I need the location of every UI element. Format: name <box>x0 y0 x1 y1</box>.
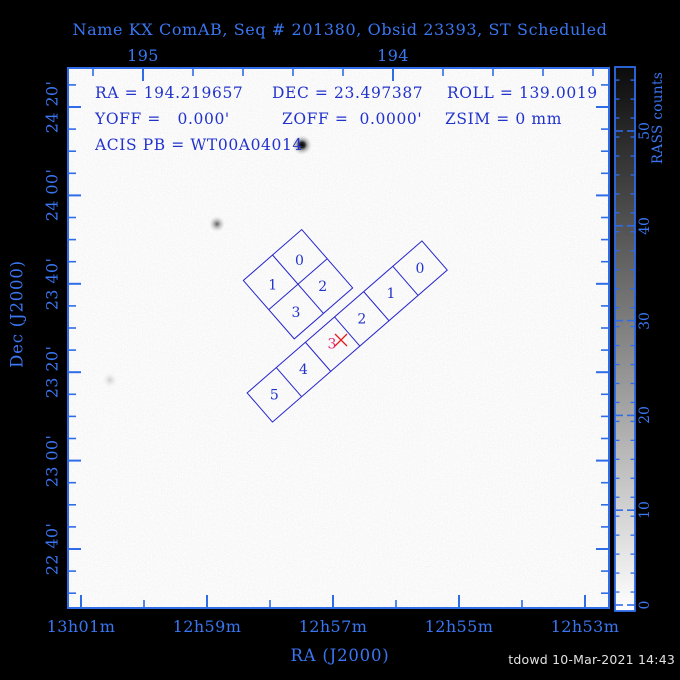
bottom-axis-tick-label: 12h55m <box>414 617 504 636</box>
dec-tick-label: 23 20' <box>43 346 62 399</box>
bottom-axis-tick-label: 12h53m <box>540 617 630 636</box>
page-title: Name KX ComAB, Seq # 201380, Obsid 23393… <box>0 20 680 39</box>
info-dec: DEC = 23.497387 <box>272 84 423 102</box>
dec-tick-label: 22 40' <box>43 523 62 576</box>
colorbar-tick-label: 0 <box>637 601 653 610</box>
acis-i-chip-label: 0 <box>295 253 304 269</box>
acis-s-aimpoint-chip-label: 3 <box>328 337 337 353</box>
info-yoff: YOFF = 0.000' <box>95 110 230 128</box>
acis-s-chip-label: 0 <box>416 261 425 277</box>
dec-tick-label: 24 20' <box>43 81 62 134</box>
top-axis-tick-label: 194 <box>348 46 438 65</box>
xray-source-blob <box>103 373 117 387</box>
top-axis-tick-label: 195 <box>98 46 188 65</box>
bottom-axis-tick-label: 12h57m <box>288 617 378 636</box>
bottom-axis-tick-label: 13h01m <box>36 617 126 636</box>
credit-timestamp: tdowd 10-Mar-2021 14:43 <box>508 652 675 667</box>
dec-tick-label: 23 40' <box>43 257 62 310</box>
info-acis-pb: ACIS PB = WT00A04014 <box>95 136 303 154</box>
info-roll: ROLL = 139.0019 <box>447 84 598 102</box>
info-zoff: ZOFF = 0.0000' <box>282 110 422 128</box>
acis-i-chip-label: 1 <box>268 278 277 294</box>
y-axis-label: Dec (J2000) <box>8 260 27 368</box>
sky-map-plot: 0123012345 <box>0 0 680 680</box>
colorbar-tick-label: 40 <box>637 217 653 235</box>
info-zsim: ZSIM = 0 mm <box>445 110 562 128</box>
colorbar-tick-label: 10 <box>637 501 653 519</box>
dec-tick-label: 24 00' <box>43 169 62 222</box>
acis-s-chip-label: 2 <box>357 311 366 327</box>
acis-i-chip-label: 2 <box>318 279 327 295</box>
fov-plot-window: 0123012345 Name KX ComAB, Seq # 201380, … <box>0 0 680 680</box>
colorbar-gradient <box>615 67 635 611</box>
acis-s-chip-label: 4 <box>299 362 308 378</box>
x-axis-label: RA (J2000) <box>240 646 440 665</box>
colorbar-tick-label: 20 <box>637 406 653 424</box>
colorbar-tick-label: 30 <box>637 312 653 330</box>
acis-i-chip-label: 3 <box>292 305 301 321</box>
xray-source-blob <box>209 216 225 232</box>
acis-s-chip-label: 1 <box>387 286 396 302</box>
colorbar-title: RASS counts <box>650 72 666 164</box>
acis-s-chip-label: 5 <box>270 387 279 403</box>
bottom-axis-tick-label: 12h59m <box>162 617 252 636</box>
info-ra: RA = 194.219657 <box>95 84 243 102</box>
dec-tick-label: 23 00' <box>43 434 62 487</box>
